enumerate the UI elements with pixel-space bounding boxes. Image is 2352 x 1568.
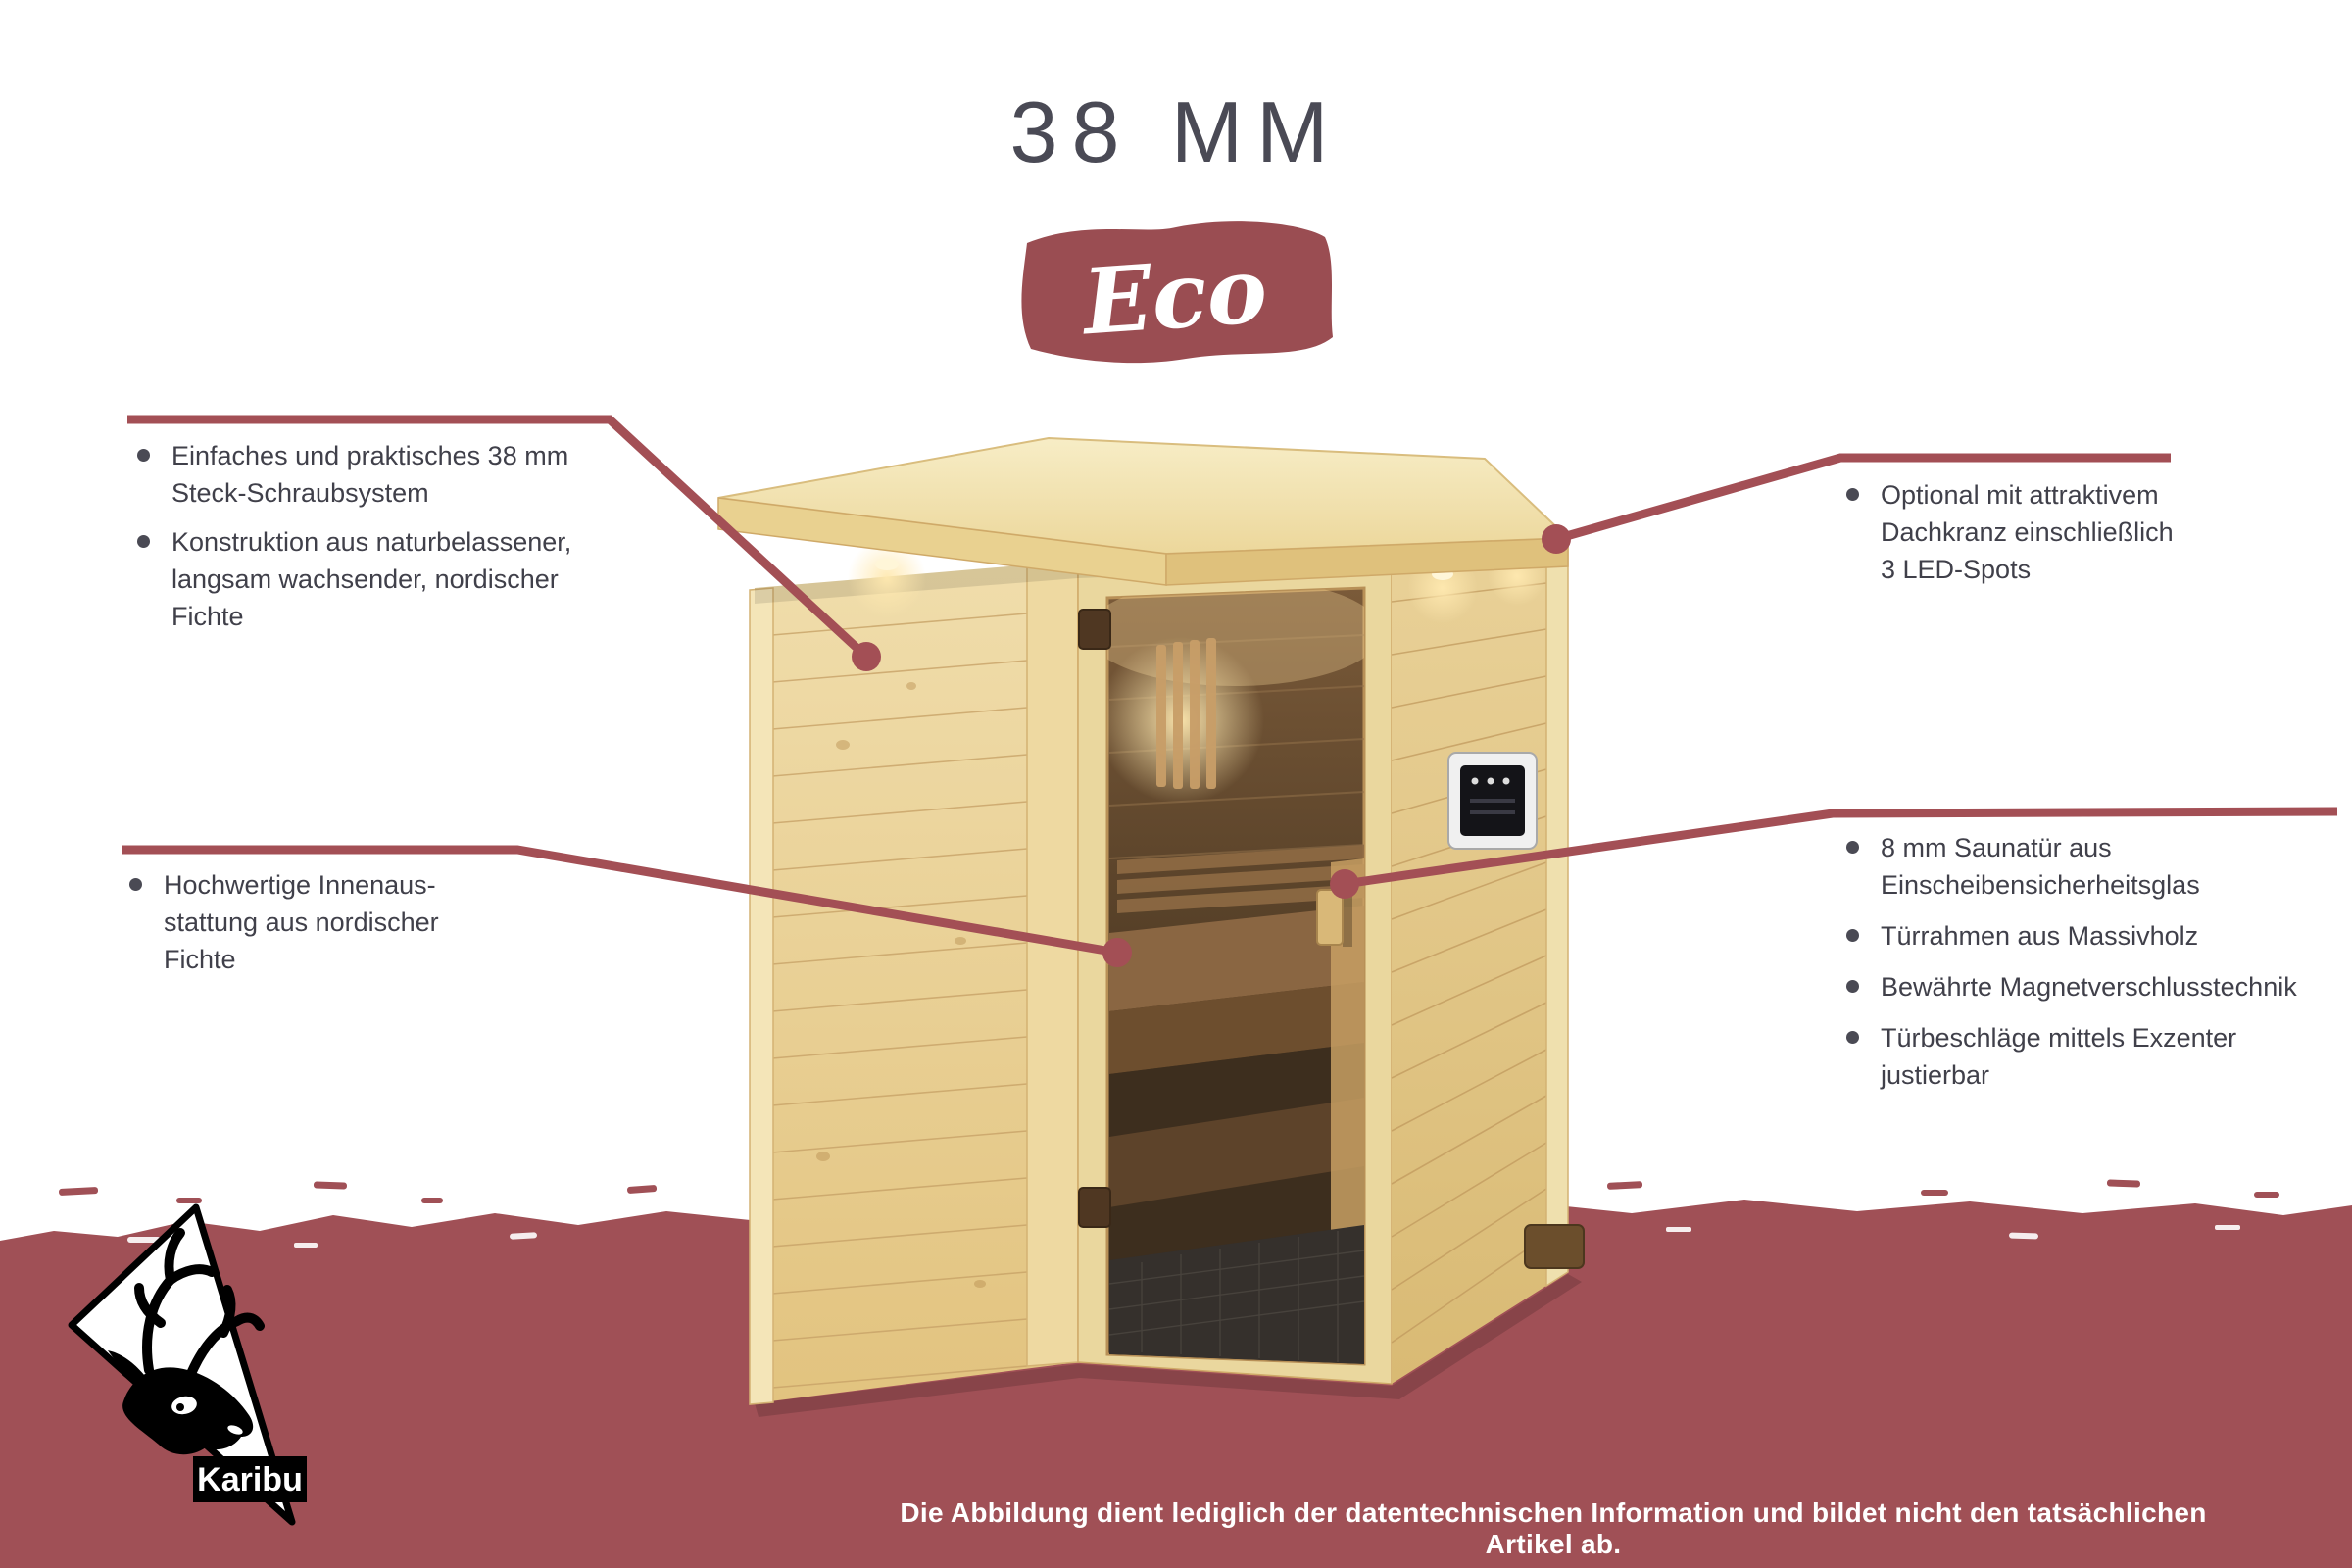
control-panel xyxy=(1448,753,1537,849)
callout-dot-left-wall xyxy=(852,642,881,671)
list-item: Optional mit attraktivem Dachkranz einsc… xyxy=(1846,476,2317,588)
bullet-dot-icon xyxy=(137,449,150,462)
eco-badge-label: Eco xyxy=(1077,237,1271,356)
callout-dot-door xyxy=(1330,869,1359,899)
list-item: Bewährte Magnetverschlusstechnik xyxy=(1846,968,2346,1005)
bullet-dot-icon xyxy=(1846,1031,1859,1044)
callout-text: Optional mit attraktivem Dachkranz einsc… xyxy=(1881,476,2174,588)
callout-text: Konstruktion aus naturbelassener, langsa… xyxy=(171,523,571,635)
callout-dot-roof xyxy=(1542,524,1571,554)
bullet-dot-icon xyxy=(137,535,150,548)
callout-middle-right: 8 mm Saunatür aus Einscheibensicherheits… xyxy=(1846,829,2346,1094)
callout-text: Türrahmen aus Massivholz xyxy=(1881,917,2198,955)
bullet-dot-icon xyxy=(1846,841,1859,854)
karibu-label: Karibu xyxy=(197,1461,303,1498)
list-item: Konstruktion aus naturbelassener, langsa… xyxy=(137,523,647,635)
door-handle xyxy=(1317,890,1343,945)
sauna-roof xyxy=(718,438,1568,585)
callout-top-right: Optional mit attraktivem Dachkranz einsc… xyxy=(1846,476,2317,588)
sauna-right-wall xyxy=(1392,538,1584,1384)
infographic-page: Karibu 38 MM Eco Einfaches und praktisch… xyxy=(0,0,2352,1568)
list-item: 8 mm Saunatür aus Einscheibensicherheits… xyxy=(1846,829,2346,904)
list-item: Einfaches und praktisches 38 mm Steck-Sc… xyxy=(137,437,647,512)
callout-text: Hochwertige Innenaus- stattung aus nordi… xyxy=(164,866,439,978)
callout-middle-left: Hochwertige Innenaus- stattung aus nordi… xyxy=(129,866,580,978)
door-hinge-bottom xyxy=(1079,1188,1110,1227)
callout-text: Türbeschläge mittels Exzenter justierbar xyxy=(1881,1019,2236,1094)
sauna-illustration xyxy=(718,438,1584,1417)
bullet-dot-icon xyxy=(1846,929,1859,942)
vent-opening xyxy=(1525,1225,1584,1268)
list-item: Türbeschläge mittels Exzenter justierbar xyxy=(1846,1019,2346,1094)
list-item: Hochwertige Innenaus- stattung aus nordi… xyxy=(129,866,580,978)
callout-text: Bewährte Magnetverschlusstechnik xyxy=(1881,968,2297,1005)
disclaimer-text: Die Abbildung dient lediglich der datent… xyxy=(892,1497,2215,1560)
bullet-dot-icon xyxy=(129,878,142,891)
bullet-dot-icon xyxy=(1846,980,1859,993)
callout-text: Einfaches und praktisches 38 mm Steck-Sc… xyxy=(171,437,568,512)
page-title: 38 MM xyxy=(0,82,2352,182)
list-item: Türrahmen aus Massivholz xyxy=(1846,917,2346,955)
bullet-dot-icon xyxy=(1846,488,1859,501)
sauna-door xyxy=(1078,551,1392,1384)
callout-text: 8 mm Saunatür aus Einscheibensicherheits… xyxy=(1881,829,2200,904)
sauna-left-wall xyxy=(750,561,1078,1404)
callout-dot-interior xyxy=(1102,938,1132,967)
door-hinge-top xyxy=(1079,610,1110,649)
callout-top-left: Einfaches und praktisches 38 mm Steck-Sc… xyxy=(137,437,647,635)
eco-badge: Eco xyxy=(1007,212,1345,372)
